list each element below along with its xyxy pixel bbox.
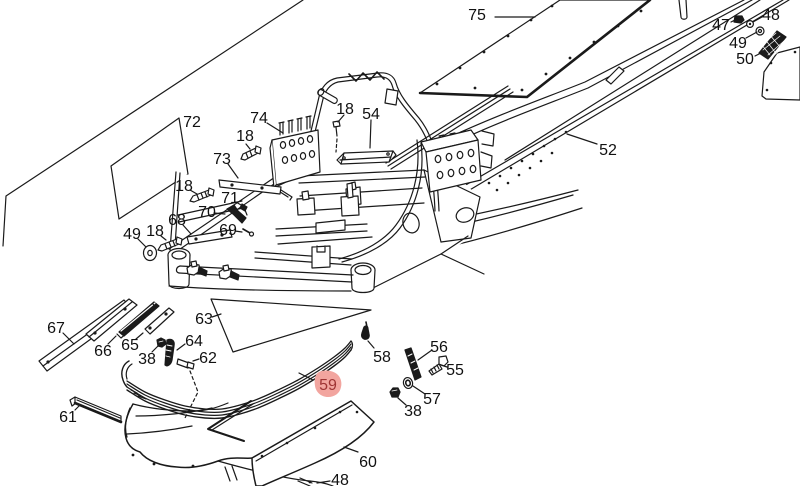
svg-text:69: 69 — [219, 222, 237, 239]
svg-text:67: 67 — [47, 320, 65, 337]
svg-text:18: 18 — [336, 101, 354, 118]
svg-text:73: 73 — [213, 151, 231, 168]
svg-text:68: 68 — [168, 212, 186, 229]
svg-text:54: 54 — [362, 106, 380, 123]
svg-text:60: 60 — [359, 454, 377, 471]
svg-text:59: 59 — [319, 377, 337, 394]
svg-text:58: 58 — [373, 349, 391, 366]
svg-text:47: 47 — [712, 17, 730, 34]
svg-text:50: 50 — [736, 51, 754, 68]
svg-text:71: 71 — [221, 190, 239, 207]
svg-text:55: 55 — [446, 362, 464, 379]
svg-text:66: 66 — [94, 343, 112, 360]
svg-text:63: 63 — [195, 311, 213, 328]
svg-text:49: 49 — [123, 226, 141, 243]
svg-text:38: 38 — [404, 403, 422, 420]
svg-text:49: 49 — [729, 35, 747, 52]
svg-text:61: 61 — [59, 409, 77, 426]
svg-text:62: 62 — [199, 350, 217, 367]
svg-text:48: 48 — [762, 7, 780, 24]
svg-text:75: 75 — [468, 7, 486, 24]
svg-text:38: 38 — [138, 351, 156, 368]
svg-text:74: 74 — [250, 110, 268, 127]
svg-text:72: 72 — [183, 114, 201, 131]
svg-text:18: 18 — [146, 223, 164, 240]
svg-text:52: 52 — [599, 142, 617, 159]
svg-text:18: 18 — [236, 128, 254, 145]
svg-text:57: 57 — [423, 391, 441, 408]
svg-text:18: 18 — [175, 178, 193, 195]
svg-text:48: 48 — [331, 472, 349, 486]
svg-text:56: 56 — [430, 339, 448, 356]
svg-text:65: 65 — [121, 337, 139, 354]
svg-text:64: 64 — [185, 333, 203, 350]
svg-text:70: 70 — [198, 204, 216, 221]
